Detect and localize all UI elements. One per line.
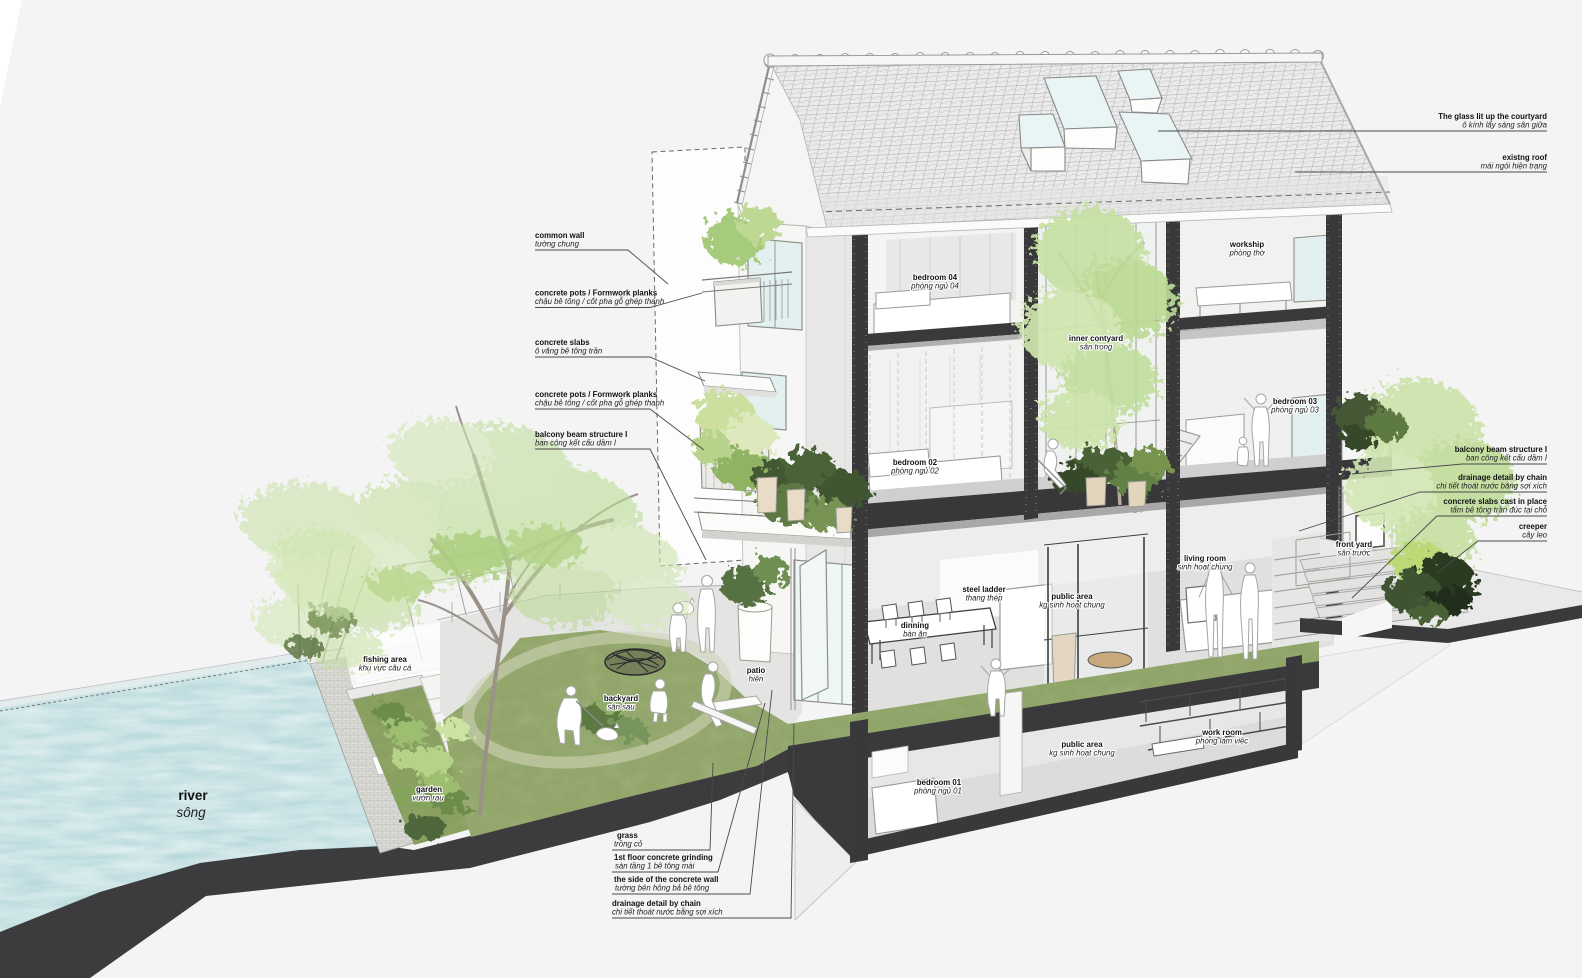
svg-text:mái ngói hiện trạng: mái ngói hiện trạng xyxy=(1481,162,1548,171)
svg-text:ban công kết cấu dầm I: ban công kết cấu dầm I xyxy=(1466,454,1548,463)
svg-text:cây leo: cây leo xyxy=(1522,531,1547,540)
svg-text:phòng thờ: phòng thờ xyxy=(1228,249,1265,258)
svg-text:sông: sông xyxy=(176,805,206,820)
svg-text:thang thép: thang thép xyxy=(966,594,1004,603)
svg-text:trồng cỏ: trồng cỏ xyxy=(614,840,643,849)
svg-text:vườn rau: vườn rau xyxy=(412,794,444,803)
svg-text:sàn tầng 1 bê tông mài: sàn tầng 1 bê tông mài xyxy=(615,862,695,871)
svg-text:sinh hoạt chung: sinh hoạt chung xyxy=(1177,563,1233,572)
svg-text:sân sau: sân sau xyxy=(607,703,635,712)
svg-text:tấm bê tông trần đúc tại chỗ: tấm bê tông trần đúc tại chỗ xyxy=(1450,506,1547,515)
svg-text:sân trước: sân trước xyxy=(1337,549,1370,558)
svg-text:bàn ăn: bàn ăn xyxy=(903,630,927,639)
svg-text:ô văng bê tông trần: ô văng bê tông trần xyxy=(535,347,602,356)
svg-text:ô kính lấy sáng sân giữa: ô kính lấy sáng sân giữa xyxy=(1462,121,1547,130)
svg-text:chậu bê tông / cốt pha gỗ ghép: chậu bê tông / cốt pha gỗ ghép thanh xyxy=(535,297,664,306)
svg-text:kg sinh hoạt chung: kg sinh hoạt chung xyxy=(1039,601,1105,610)
svg-text:chậu bê tông / cốt pha gỗ ghép: chậu bê tông / cốt pha gỗ ghép thanh xyxy=(535,399,664,408)
svg-text:ban công kết cấu dầm I: ban công kết cấu dầm I xyxy=(535,439,617,448)
svg-text:river: river xyxy=(178,788,208,803)
svg-text:chi tiết thoát nước bằng sợi x: chi tiết thoát nước bằng sợi xích xyxy=(1436,482,1547,491)
svg-text:tường chung: tường chung xyxy=(535,240,580,249)
svg-text:phòng ngủ 04: phòng ngủ 04 xyxy=(910,282,959,291)
svg-text:phòng làm việc: phòng làm việc xyxy=(1195,737,1249,746)
svg-text:hiên: hiên xyxy=(749,675,764,684)
svg-text:tường bên hông bả bê tông: tường bên hông bả bê tông xyxy=(615,884,710,893)
svg-text:khu vực câu cá: khu vực câu cá xyxy=(359,664,412,673)
svg-text:chi tiết thoát nước bằng sợi x: chi tiết thoát nước bằng sợi xích xyxy=(612,908,723,917)
svg-text:phòng ngủ 01: phòng ngủ 01 xyxy=(913,787,962,796)
svg-text:sân trong: sân trong xyxy=(1080,343,1113,352)
svg-text:phòng ngủ 03: phòng ngủ 03 xyxy=(1270,406,1319,415)
svg-text:phòng ngủ 02: phòng ngủ 02 xyxy=(890,467,939,476)
svg-text:kg sinh hoạt chung: kg sinh hoạt chung xyxy=(1049,749,1115,758)
